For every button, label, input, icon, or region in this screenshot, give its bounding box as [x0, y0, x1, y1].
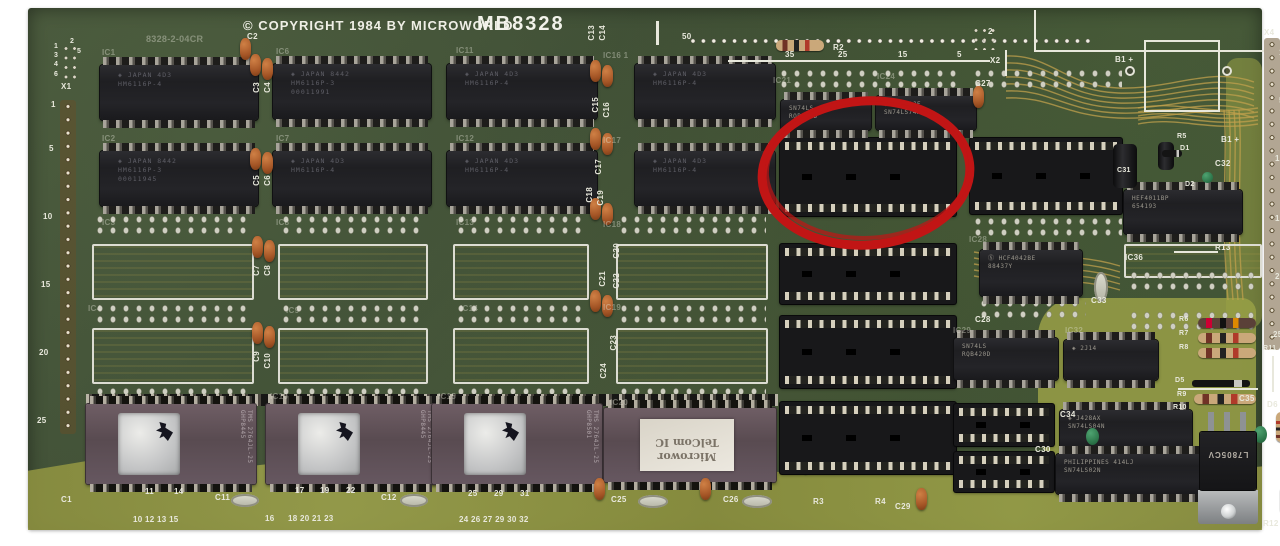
tantalum-capacitor	[250, 148, 261, 170]
chip-marking: HM6116P-3	[273, 79, 431, 88]
silkscreen-label: C17	[595, 159, 603, 175]
silkscreen-line	[1272, 356, 1274, 392]
silkscreen-label: X2	[990, 57, 1000, 65]
silkscreen-line	[1174, 251, 1218, 253]
tantalum-capacitor	[262, 152, 273, 174]
diode	[1192, 380, 1250, 387]
silkscreen-label: C23	[610, 335, 618, 351]
chip-marking: SN74LS02N	[1056, 467, 1204, 475]
empty-dip-socket	[954, 452, 1054, 492]
empty-dip-socket	[780, 316, 956, 388]
silkscreen-label: C19	[597, 190, 605, 206]
chip-marking: ◈ JAPAN 4D3	[273, 157, 431, 166]
logic-chip: ◈ 2J14	[1064, 340, 1158, 380]
silkscreen-label: 24 26 27 29 30 32	[459, 516, 529, 524]
copyright-text: © COPYRIGHT 1984 BY MICROWORLD	[243, 18, 513, 33]
silkscreen-label: C29	[895, 503, 911, 511]
chip-marking: TelCom IC	[640, 435, 734, 449]
silkscreen-label: C33	[1091, 297, 1107, 305]
silkscreen-label: 3	[54, 52, 58, 59]
eprom-chip: TMS 2764JL-25 GHP8445	[266, 404, 436, 484]
silkscreen-label: 1	[51, 101, 56, 109]
socket-cavity	[802, 174, 934, 180]
oval-solder-pad	[400, 494, 428, 507]
silkscreen-label: C34	[1060, 411, 1076, 419]
chip-marking: SN74LS04N	[1060, 423, 1192, 431]
silkscreen-label: IC18	[603, 221, 621, 229]
silkscreen-label: 10	[43, 213, 53, 221]
silkscreen-label: C9	[253, 351, 261, 362]
silkscreen-label: X1	[61, 83, 71, 91]
silkscreen-label: R12	[1263, 520, 1279, 528]
silkscreen-label: IC6	[276, 48, 289, 56]
tantalum-capacitor	[252, 236, 263, 258]
silkscreen-label: C7	[253, 265, 261, 276]
chip-marking: SN74LS	[781, 105, 871, 113]
silkscreen-label: R2	[833, 44, 844, 52]
silkscreen-label: C10	[264, 353, 272, 369]
solder-pad-row	[94, 214, 252, 236]
tantalum-capacitor	[590, 290, 601, 312]
ram-chip: ◈ JAPAN 4D3HM6116P-4	[635, 151, 775, 206]
tantalum-capacitor	[700, 478, 711, 500]
silkscreen-label: 16	[265, 515, 275, 523]
silkscreen-label: C16	[603, 102, 611, 118]
empty-dip-socket	[780, 244, 956, 304]
silkscreen-label: C21	[599, 271, 607, 287]
silkscreen-label: C12	[381, 494, 397, 502]
socket-cavity	[976, 469, 1032, 475]
silkscreen-label: C2	[247, 33, 258, 41]
ti-logo	[156, 422, 173, 441]
oval-solder-pad	[742, 495, 772, 508]
ic-footprint	[92, 328, 254, 384]
ceramic-capacitor	[1202, 172, 1213, 183]
chip-marking: ◈ J428AX	[1060, 415, 1192, 423]
silkscreen-label: IC10	[270, 393, 288, 401]
ic-footprint	[616, 244, 768, 300]
silkscreen-label: D5	[1175, 377, 1185, 384]
silkscreen-label: IC20	[610, 399, 628, 407]
eprom-window	[298, 413, 360, 475]
mounting-hole	[1221, 504, 1236, 519]
tantalum-capacitor	[264, 240, 275, 262]
silkscreen-label: IC21	[773, 77, 791, 85]
silkscreen-label: 8328-2-04CR	[146, 35, 203, 44]
silkscreen-label: C15	[592, 97, 600, 113]
oval-solder-pad	[231, 494, 259, 507]
silkscreen-label: 20	[39, 349, 49, 357]
silkscreen-label: 50	[682, 33, 692, 41]
silkscreen-label: IC24	[877, 73, 895, 81]
silkscreen-label: R8	[1179, 344, 1189, 351]
silkscreen-line	[1034, 10, 1036, 51]
chip-marking: RQB420D	[954, 351, 1058, 359]
chip-marking: RQB420D	[781, 113, 871, 121]
silkscreen-line	[1005, 50, 1007, 76]
silkscreen-label: IC15	[438, 393, 456, 401]
silkscreen-label: 29	[494, 490, 504, 498]
empty-dip-socket	[780, 138, 956, 216]
chip-marking: ◈ JAPAN 4D3	[635, 157, 775, 166]
eprom-chip: TMS 2764JL-25 GHP8501	[432, 404, 602, 484]
ram-chip: ◈ JAPAN 4D3HM6116P-4	[100, 65, 258, 120]
silkscreen-label: IC13	[456, 219, 474, 227]
silkscreen-label: X4	[1264, 29, 1274, 37]
tantalum-capacitor	[594, 478, 605, 500]
silkscreen-label: R4	[875, 498, 886, 506]
chip-marking: ◈ JAPAN 4D3	[447, 157, 597, 166]
resistor	[1198, 333, 1256, 343]
silkscreen-label: R10	[1173, 404, 1187, 411]
chip-marking: HM6116P-4	[635, 79, 775, 88]
silkscreen-label: IC19	[603, 304, 621, 312]
silkscreen-label: B1 +	[1221, 136, 1239, 144]
silkscreen-label: IC4	[88, 305, 101, 313]
silkscreen-label: 31	[520, 490, 530, 498]
silkscreen-label: 6	[54, 71, 58, 78]
silkscreen-label: IC8	[276, 219, 289, 227]
silkscreen-label: C26	[723, 496, 739, 504]
eprom-window	[118, 413, 180, 475]
tantalum-capacitor	[252, 322, 263, 344]
chip-marking: HEF4011BP	[1124, 195, 1242, 203]
socket-cavity	[802, 349, 934, 355]
silkscreen-label: IC16 1	[603, 52, 628, 60]
pad-grid	[972, 26, 998, 50]
chip-marking: L7805CV	[1200, 450, 1256, 459]
silkscreen-label: 20	[1275, 273, 1280, 281]
silkscreen-label: 25	[1273, 331, 1280, 339]
silkscreen-line	[1178, 388, 1258, 390]
chip-marking: Microwor	[640, 449, 734, 463]
solder-pad-row	[778, 68, 960, 90]
silkscreen-label: 4	[54, 61, 58, 68]
silkscreen-label: IC29	[953, 327, 971, 335]
silkscreen-label: C30	[1035, 446, 1051, 454]
solder-pad-row	[618, 214, 766, 236]
silkscreen-label: IC36	[1125, 254, 1143, 262]
silkscreen-label: 22	[346, 487, 356, 495]
silkscreen-label: IC14	[460, 305, 478, 313]
silkscreen-label: C18	[586, 187, 594, 203]
tantalum-capacitor	[250, 54, 261, 76]
diode	[1162, 150, 1182, 157]
silkscreen-label: IC9	[286, 307, 299, 315]
silkscreen-label: IC32	[1065, 327, 1083, 335]
silkscreen-label: C13	[588, 25, 596, 41]
board-model-number: MB8328	[477, 13, 565, 36]
tantalum-capacitor	[240, 38, 251, 60]
silkscreen-line	[656, 21, 659, 45]
chip-marking: SN74LS	[954, 343, 1058, 351]
silkscreen-label: 11	[145, 488, 154, 496]
tantalum-capacitor	[590, 60, 601, 82]
silkscreen-label: B1 +	[1115, 56, 1133, 64]
silkscreen-label: D2	[1185, 181, 1195, 188]
resistor	[776, 40, 824, 51]
ram-chip: ◈ JAPAN 8442HM6116P-300011945	[100, 151, 258, 206]
chip-marking: HM6116P-4	[447, 79, 597, 88]
silkscreen-label: R5	[1177, 133, 1187, 140]
silkscreen-label: R3	[813, 498, 824, 506]
silkscreen-label: 5	[77, 48, 81, 55]
eprom-chip: MicroworTelCom IC	[604, 408, 776, 482]
silkscreen-label: IC7	[276, 135, 289, 143]
silkscreen-label: C3	[253, 82, 261, 93]
logic-chip: Ⓢ HCF4042BE88437Y	[980, 250, 1082, 296]
socket-cavity	[976, 422, 1032, 428]
solder-pad-row	[972, 68, 1122, 90]
battery-outline	[1144, 40, 1220, 112]
chip-marking: PHILIPPINES 414LJ	[1056, 459, 1204, 467]
silkscreen-label: 18 20 21 23	[288, 515, 334, 523]
silkscreen-label: 2	[988, 28, 993, 36]
solder-pad-row	[455, 214, 587, 236]
empty-dip-socket	[780, 402, 956, 474]
silkscreen-label: C5	[253, 175, 261, 186]
solder-pad-row	[94, 303, 252, 325]
voltage-regulator: L7805CV	[1200, 432, 1256, 490]
resistor	[1198, 348, 1256, 358]
chip-marking: 654193	[1124, 203, 1242, 211]
regulator-legs	[1208, 412, 1248, 432]
silkscreen-label: C27	[975, 80, 991, 88]
resistor	[1198, 318, 1256, 328]
chip-marking: HM6116P-4	[100, 80, 258, 89]
logic-chip: SN74LSRQB420D	[781, 100, 871, 130]
silkscreen-label: 35	[785, 51, 795, 59]
resistor	[1276, 412, 1280, 442]
silkscreen-label: C11	[215, 494, 230, 502]
chip-marking: ◈ JAPAN 8442	[273, 70, 431, 79]
silkscreen-label: C32	[1215, 160, 1231, 168]
silkscreen-label: 25	[838, 51, 848, 59]
silkscreen-label: D6	[1267, 401, 1278, 409]
silkscreen-label: D1	[1180, 145, 1190, 152]
silkscreen-label: 1	[54, 43, 58, 50]
logic-chip: PHILIPPINES 414LJSN74LS02N	[1056, 454, 1204, 494]
tantalum-capacitor	[602, 65, 613, 87]
silkscreen-label: R13	[1215, 244, 1231, 252]
ic-footprint	[278, 328, 428, 384]
ti-logo	[336, 422, 353, 441]
solder-pad-row	[280, 303, 426, 325]
silkscreen-label: R6	[1179, 316, 1189, 323]
regulator-tab	[1198, 490, 1258, 524]
connector-holes	[60, 100, 76, 434]
ic-footprint	[616, 328, 768, 384]
chip-marking: HM6116P-4	[273, 166, 431, 175]
logic-chip: SN74LSRQB420D	[954, 338, 1058, 380]
socket-cavity	[992, 173, 1100, 179]
silkscreen-label: 15	[1275, 215, 1280, 223]
silkscreen-line	[728, 60, 990, 62]
chip-marking: Ⓢ HCF4042BE	[980, 255, 1082, 263]
silkscreen-label: 5	[49, 145, 54, 153]
silkscreen-label: C6	[264, 175, 272, 186]
tantalum-capacitor	[264, 326, 275, 348]
chip-marking: HM6116P-4	[635, 166, 775, 175]
silkscreen-label: C4	[264, 82, 272, 93]
ram-chip: ◈ JAPAN 4D3HM6116P-4	[447, 151, 597, 206]
eprom-chip: TMS 2764JL-25 GHP8445	[86, 404, 256, 484]
tantalum-capacitor	[262, 58, 273, 80]
logic-chip: HEF4011BP654193	[1124, 190, 1242, 234]
silkscreen-label: R9	[1177, 391, 1187, 398]
paper-label: MicroworTelCom IC	[640, 419, 734, 471]
circuit-board: ◈ JAPAN 4D3HM6116P-4◈ JAPAN 8442HM6116P-…	[28, 8, 1262, 530]
oval-solder-pad	[638, 495, 668, 508]
silkscreen-label: C24	[600, 363, 608, 379]
logic-chip: ◈ J445AJFSN74LS74AN	[876, 96, 976, 130]
tantalum-capacitor	[590, 128, 601, 150]
via-pad	[1222, 66, 1232, 76]
silkscreen-label: IC11	[456, 47, 474, 55]
chip-marking: TMS 2764JL-25 GHP8445	[239, 410, 253, 478]
silkscreen-label: C25	[611, 496, 627, 504]
ic-footprint	[278, 244, 428, 300]
solder-pad-row	[280, 214, 426, 236]
solder-pad-row	[618, 303, 766, 325]
socket-cavity	[802, 271, 934, 277]
ram-chip: ◈ JAPAN 4D3HM6116P-4	[635, 64, 775, 119]
solder-pad-row	[972, 216, 1122, 238]
silkscreen-label: IC12	[456, 135, 474, 143]
pcb-photo: ◈ JAPAN 4D3HM6116P-4◈ JAPAN 8442HM6116P-…	[0, 0, 1280, 546]
silkscreen-label: 14	[174, 488, 184, 496]
chip-marking: ◈ JAPAN 4D3	[635, 70, 775, 79]
empty-dip-socket	[954, 404, 1054, 446]
eprom-window	[464, 413, 526, 475]
silkscreen-label: R7	[1179, 330, 1189, 337]
socket-cavity	[802, 435, 934, 441]
chip-marking: SN74LS74AN	[876, 109, 976, 117]
silkscreen-label: 15	[41, 281, 51, 289]
ic-footprint	[453, 244, 589, 300]
silkscreen-label: 25	[37, 417, 47, 425]
ti-logo	[502, 422, 519, 441]
logic-chip: ◈ J428AXSN74LS04N	[1060, 410, 1192, 450]
ram-chip: ◈ JAPAN 4D3HM6116P-4	[447, 64, 597, 119]
silkscreen-label: 10	[1275, 155, 1280, 163]
chip-marking: TMS 2764JL-25 GHP8445	[419, 410, 433, 478]
silkscreen-label: 10 12 13 15	[133, 516, 179, 524]
ram-chip: ◈ JAPAN 8442HM6116P-300011991	[273, 64, 431, 119]
silkscreen-label: IC1	[102, 49, 115, 57]
ic-footprint	[453, 328, 589, 384]
silkscreen-label: C22	[613, 273, 621, 289]
chip-marking: 00011991	[273, 88, 431, 97]
silkscreen-label: 15	[898, 51, 908, 59]
ceramic-capacitor	[1086, 428, 1099, 445]
empty-dip-socket	[970, 138, 1122, 214]
silkscreen-label: C1	[61, 496, 72, 504]
chip-marking: 88437Y	[980, 263, 1082, 271]
ic-footprint	[92, 244, 254, 300]
silkscreen-label: 19	[320, 487, 330, 495]
silkscreen-label: R11	[1263, 345, 1276, 352]
ram-chip: ◈ JAPAN 4D3HM6116P-4	[273, 151, 431, 206]
chip-marking: HM6116P-4	[447, 166, 597, 175]
silkscreen-label: IC3	[102, 219, 115, 227]
chip-marking: ◈ JAPAN 8442	[100, 157, 258, 166]
silkscreen-label: C31	[1117, 167, 1131, 174]
silkscreen-label: IC2	[102, 135, 115, 143]
silkscreen-label: IC17	[603, 137, 621, 145]
connector-holes	[1264, 38, 1280, 350]
silkscreen-label: 2	[70, 38, 74, 45]
chip-marking: ◈ J445AJF	[876, 101, 976, 109]
silkscreen-label: C14	[599, 25, 607, 41]
tantalum-capacitor	[973, 86, 984, 108]
silkscreen-label: 17	[295, 487, 305, 495]
via-pad	[1125, 66, 1135, 76]
chip-marking: ◈ JAPAN 4D3	[447, 70, 597, 79]
silkscreen-label: 25	[468, 490, 478, 498]
chip-marking: HM6116P-3	[100, 166, 258, 175]
tantalum-capacitor	[916, 488, 927, 510]
chip-marking: ◈ 2J14	[1064, 345, 1158, 353]
chip-marking: ◈ JAPAN 4D3	[100, 71, 258, 80]
solder-pad-row	[1128, 270, 1260, 292]
silkscreen-label: C20	[613, 243, 621, 259]
silkscreen-label: 5	[957, 51, 962, 59]
chip-marking: 00011945	[100, 175, 258, 184]
silkscreen-label: C35	[1239, 395, 1255, 403]
silkscreen-label: C8	[264, 265, 272, 276]
electrolytic-capacitor	[1113, 144, 1137, 188]
silkscreen-label: C28	[975, 316, 991, 324]
silkscreen-label: IC28	[969, 236, 987, 244]
chip-marking: TMS 2764JL-25 GHP8501	[585, 410, 599, 478]
